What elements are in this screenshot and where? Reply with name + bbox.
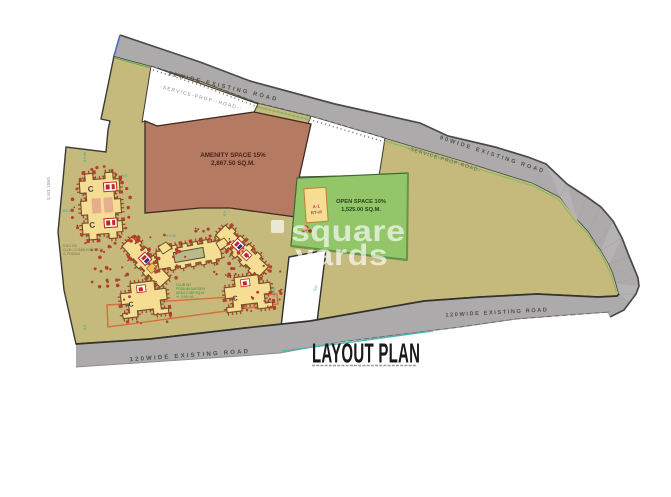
svg-text:9.0 M: 9.0 M xyxy=(83,153,87,163)
svg-text:9.0 M: 9.0 M xyxy=(272,288,276,298)
svg-text:+/- 0.00 LVL: +/- 0.00 LVL xyxy=(176,295,194,299)
svg-text:9.0: 9.0 xyxy=(223,211,227,216)
svg-text:9.0 M: 9.0 M xyxy=(166,234,176,238)
svg-text:yards: yards xyxy=(295,238,388,272)
svg-text:A-1: A-1 xyxy=(312,204,320,210)
svg-text:OPEN SPACE 10%: OPEN SPACE 10% xyxy=(336,199,386,205)
svg-text:C: C xyxy=(89,220,96,229)
svg-text:8.0 M: 8.0 M xyxy=(63,209,73,213)
svg-text:C: C xyxy=(87,184,94,193)
svg-text:AMENITY SPACE 15%: AMENITY SPACE 15% xyxy=(200,152,266,159)
svg-text:C: C xyxy=(128,301,134,309)
svg-text:G. PODIUM: G. PODIUM xyxy=(63,252,80,256)
svg-text:2,867.50 SQ.M.: 2,867.50 SQ.M. xyxy=(211,160,255,167)
svg-text:S.NO. 159/1: S.NO. 159/1 xyxy=(46,176,51,200)
svg-text:9.0: 9.0 xyxy=(122,174,127,178)
svg-text:9.0: 9.0 xyxy=(83,325,87,330)
svg-text:1,525.00 SQ.M.: 1,525.00 SQ.M. xyxy=(341,207,381,213)
svg-text:LAYOUT PLAN: LAYOUT PLAN xyxy=(312,338,420,369)
